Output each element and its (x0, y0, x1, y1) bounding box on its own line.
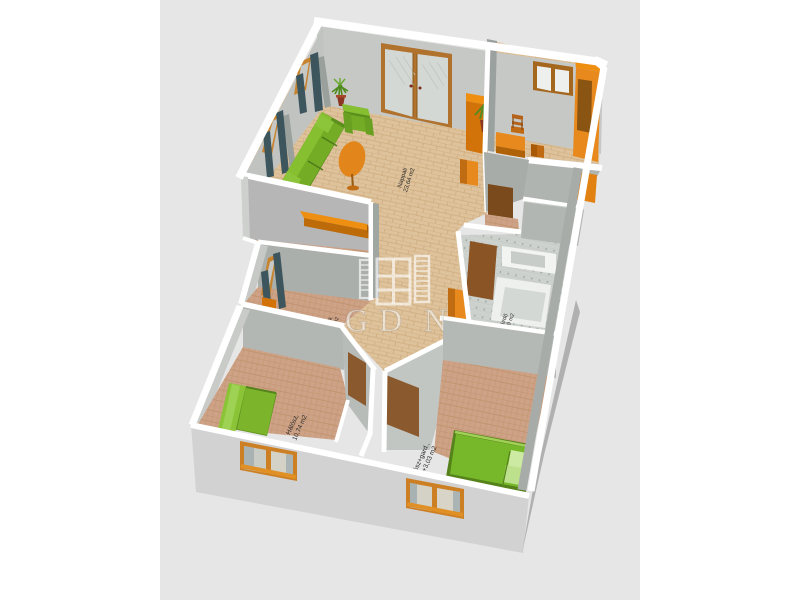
svg-text:D: D (379, 302, 402, 338)
svg-text:N: N (424, 302, 447, 338)
svg-text:G: G (345, 302, 368, 338)
